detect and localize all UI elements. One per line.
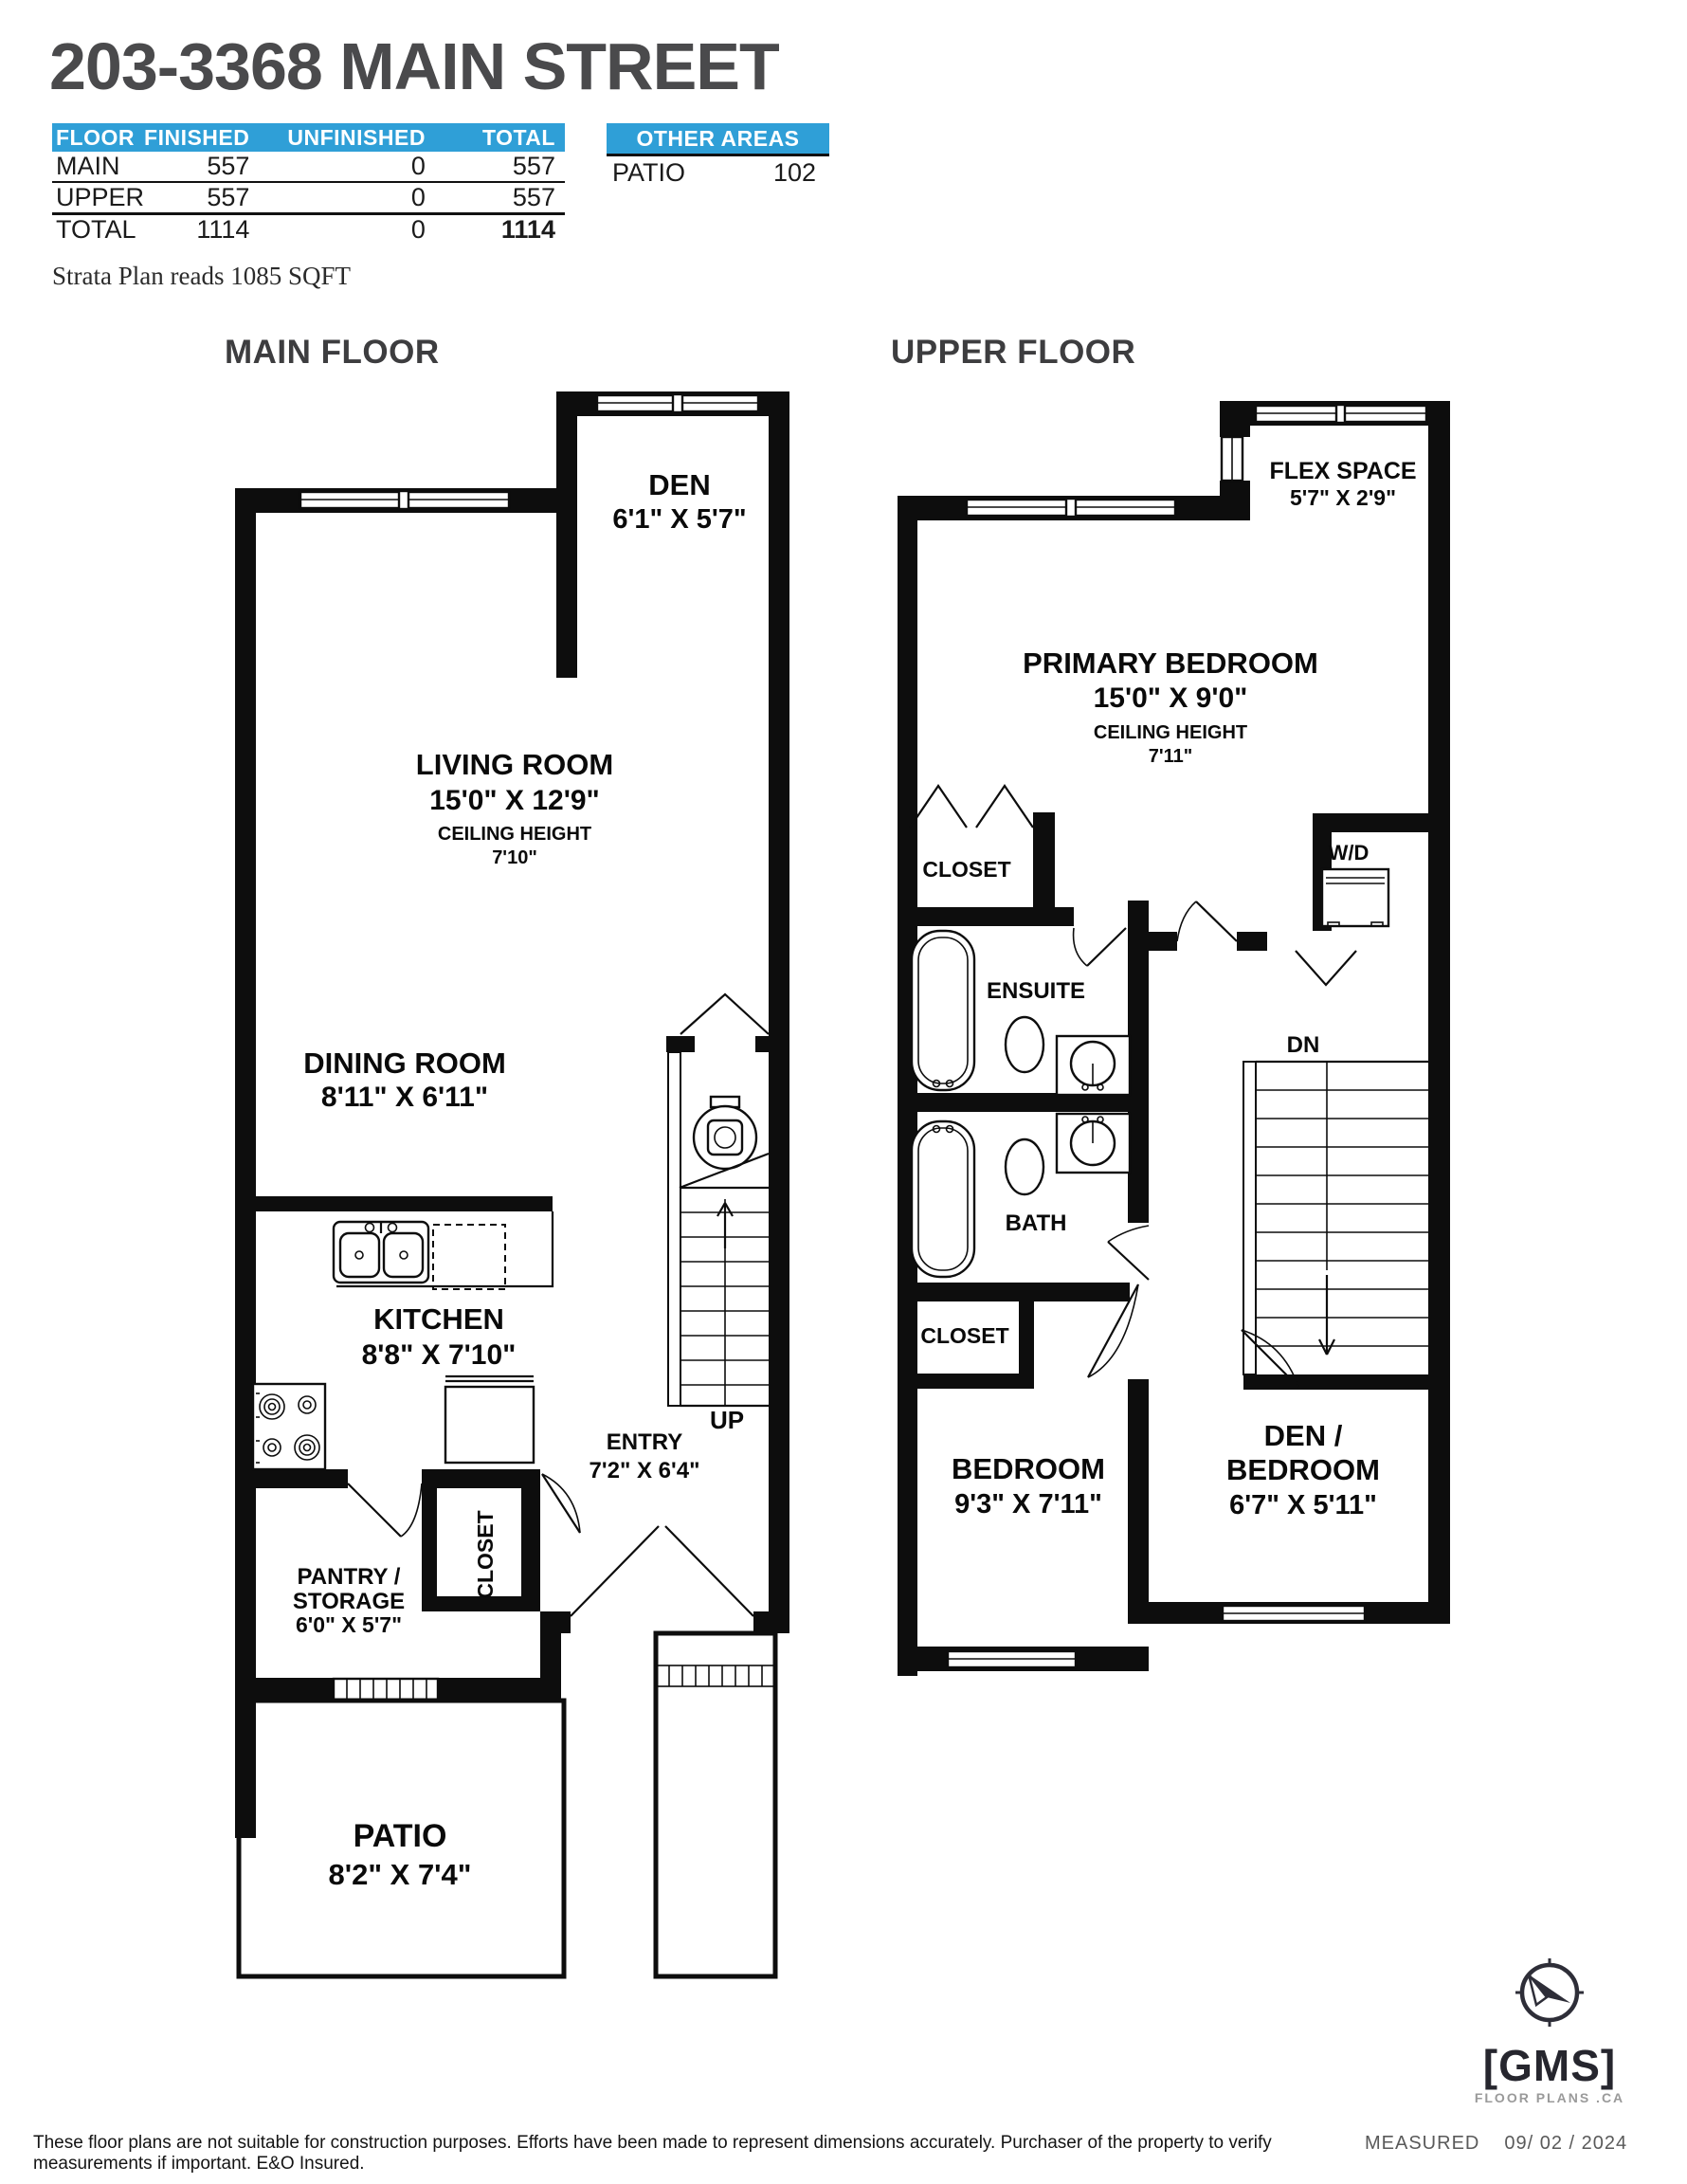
bath-door-arc	[1108, 1226, 1149, 1242]
bath-toilet-icon	[1006, 1139, 1043, 1194]
measured-date: MEASURED09/ 02 / 2024	[1365, 2133, 1652, 2155]
bedroom-label: BEDROOM	[952, 1452, 1105, 1485]
dining-room-dims: 8'11" X 6'11"	[321, 1082, 488, 1113]
wc-door-swing	[680, 994, 769, 1034]
pantry-door-arc	[401, 1483, 422, 1537]
cell-area-name: PATIO	[607, 155, 736, 191]
ensuite-door-arc	[1074, 928, 1087, 966]
pantry-label-line1: PANTRY /	[298, 1564, 401, 1590]
den-bedroom-label-line1: DEN /	[1264, 1419, 1343, 1452]
patio-label: PATIO	[354, 1818, 447, 1854]
den-dims: 6'1" X 5'7"	[612, 504, 746, 535]
cell-floor: TOTAL	[52, 214, 144, 246]
cell-unfinished: 0	[287, 214, 482, 246]
other-areas-table: OTHER AREAS PATIO 102	[607, 123, 829, 190]
bedroom-closet-label: CLOSET	[920, 1323, 1008, 1348]
ensuite-tub-icon	[912, 931, 974, 1090]
up-arrow-icon	[717, 1203, 733, 1248]
closet-door-leaf	[542, 1474, 580, 1533]
disclaimer-text: These floor plans are not suitable for c…	[33, 2133, 1303, 2175]
patio-slider-window	[334, 1679, 438, 1700]
pantry-door-leaf	[348, 1483, 401, 1537]
table-row-total: TOTAL 1114 0 1114	[52, 214, 565, 246]
cell-unfinished: 0	[287, 182, 482, 214]
primary-door-leaf	[1196, 901, 1237, 941]
living-room-dims: 15'0" X 12'9"	[429, 785, 600, 816]
closet-label: CLOSET	[473, 1510, 498, 1598]
down-arrow-icon	[1319, 1275, 1334, 1355]
logo-tagline: FLOOR PLANS .CA	[1450, 2090, 1649, 2105]
cell-finished: 1114	[144, 214, 287, 246]
living-ceiling-value: 7'10"	[492, 847, 537, 868]
main-floor-label: MAIN FLOOR	[225, 334, 440, 372]
column-floor: FLOOR	[52, 123, 144, 152]
ensuite-door-leaf	[1087, 928, 1126, 966]
column-unfinished: UNFINISHED	[287, 123, 482, 152]
column-finished: FINISHED	[144, 123, 287, 152]
table-row-patio: PATIO 102	[607, 155, 829, 191]
upper-floor-room-labels: FLEX SPACE 5'7" X 2'9" PRIMARY BEDROOM 1…	[920, 458, 1416, 1520]
entry-door-leaf-right	[665, 1526, 753, 1616]
wc-toilet-icon	[694, 1097, 756, 1169]
ensuite-toilet-icon	[1006, 1017, 1043, 1072]
pantry-label-line2: STORAGE	[293, 1589, 405, 1614]
laundry-label: W/D	[1329, 841, 1370, 864]
staircase-down	[1243, 1062, 1428, 1374]
page-title: 203-3368 MAIN STREET	[49, 28, 779, 104]
den-label: DEN	[648, 468, 710, 501]
flex-space-label: FLEX SPACE	[1269, 458, 1416, 484]
bedroom-dims: 9'3" X 7'11"	[954, 1489, 1102, 1520]
primary-ceiling-value: 7'11"	[1149, 746, 1193, 767]
gms-logo: [GMS] FLOOR PLANS .CA	[1450, 1951, 1649, 2105]
den-bedroom-dims: 6'7" X 5'11"	[1229, 1490, 1377, 1520]
living-room-label: LIVING ROOM	[416, 748, 613, 781]
table-row-main: MAIN 557 0 557	[52, 152, 565, 182]
dn-label: DN	[1287, 1032, 1320, 1058]
kitchen-sink-icon	[334, 1222, 428, 1283]
kitchen-dims: 8'8" X 7'10"	[362, 1339, 517, 1371]
primary-closet-label: CLOSET	[922, 857, 1010, 882]
entry-label: ENTRY	[607, 1429, 682, 1455]
compass-icon	[1497, 1951, 1602, 2038]
upper-floor-plan: FLEX SPACE 5'7" X 2'9" PRIMARY BEDROOM 1…	[881, 384, 1460, 1758]
floor-plan-document: 203-3368 MAIN STREET FLOOR FINISHED UNFI…	[0, 0, 1687, 2184]
dining-room-label: DINING ROOM	[303, 1046, 506, 1080]
primary-closet-doors	[910, 786, 1033, 828]
column-total: TOTAL	[482, 123, 565, 152]
patio-dims: 8'2" X 7'4"	[328, 1858, 471, 1891]
measured-label: MEASURED	[1365, 2133, 1479, 2154]
cell-floor: MAIN	[52, 152, 144, 182]
living-ceiling-label: CEILING HEIGHT	[438, 824, 591, 845]
cell-floor: UPPER	[52, 182, 144, 214]
logo-text: [GMS]	[1450, 2043, 1649, 2088]
table-row-upper: UPPER 557 0 557	[52, 182, 565, 214]
cell-unfinished: 0	[287, 152, 482, 182]
primary-ceiling-label: CEILING HEIGHT	[1094, 722, 1247, 743]
den-bedroom-label-line2: BEDROOM	[1226, 1453, 1380, 1486]
cell-area-value: 102	[736, 155, 829, 191]
bath-fixtures	[912, 1114, 1130, 1277]
ensuite-label: ENSUITE	[987, 978, 1085, 1004]
kitchen-counter	[334, 1211, 553, 1289]
laundry-door-swing	[1296, 951, 1356, 985]
strata-note: Strata Plan reads 1085 SQFT	[52, 262, 351, 291]
cell-total-bold: 1114	[482, 214, 565, 246]
cell-finished: 557	[144, 182, 287, 214]
kitchen-label: KITCHEN	[373, 1302, 504, 1336]
primary-door-arc	[1177, 901, 1196, 941]
other-areas-title: OTHER AREAS	[607, 123, 829, 155]
cell-finished: 557	[144, 152, 287, 182]
primary-bedroom-dims: 15'0" X 9'0"	[1094, 682, 1248, 714]
main-floor-plan: DEN 6'1" X 5'7" LIVING ROOM 15'0" X 12'9…	[227, 384, 796, 1986]
dishwasher-icon	[433, 1225, 505, 1289]
cell-total: 557	[482, 182, 565, 214]
area-table-header: FLOOR FINISHED UNFINISHED TOTAL	[52, 123, 565, 152]
primary-bedroom-label: PRIMARY BEDROOM	[1023, 646, 1318, 680]
entry-dims: 7'2" X 6'4"	[590, 1458, 700, 1483]
stove-icon	[253, 1384, 325, 1469]
laundry-unit	[1296, 869, 1388, 985]
entry-door-leaf-left	[571, 1526, 659, 1616]
flex-space-dims: 5'7" X 2'9"	[1290, 485, 1396, 510]
measured-value: 09/ 02 / 2024	[1504, 2133, 1627, 2154]
upper-floor-label: UPPER FLOOR	[891, 334, 1135, 372]
cell-total: 557	[482, 152, 565, 182]
fridge-icon	[445, 1376, 534, 1463]
area-table: FLOOR FINISHED UNFINISHED TOTAL MAIN 557…	[52, 123, 565, 245]
bath-label: BATH	[1006, 1210, 1067, 1236]
pantry-dims: 6'0" X 5'7"	[296, 1612, 402, 1637]
up-label: UP	[710, 1406, 744, 1434]
bath-door-leaf	[1108, 1242, 1149, 1280]
bath-tub-icon	[912, 1121, 974, 1277]
walkway-outline	[656, 1633, 775, 1976]
